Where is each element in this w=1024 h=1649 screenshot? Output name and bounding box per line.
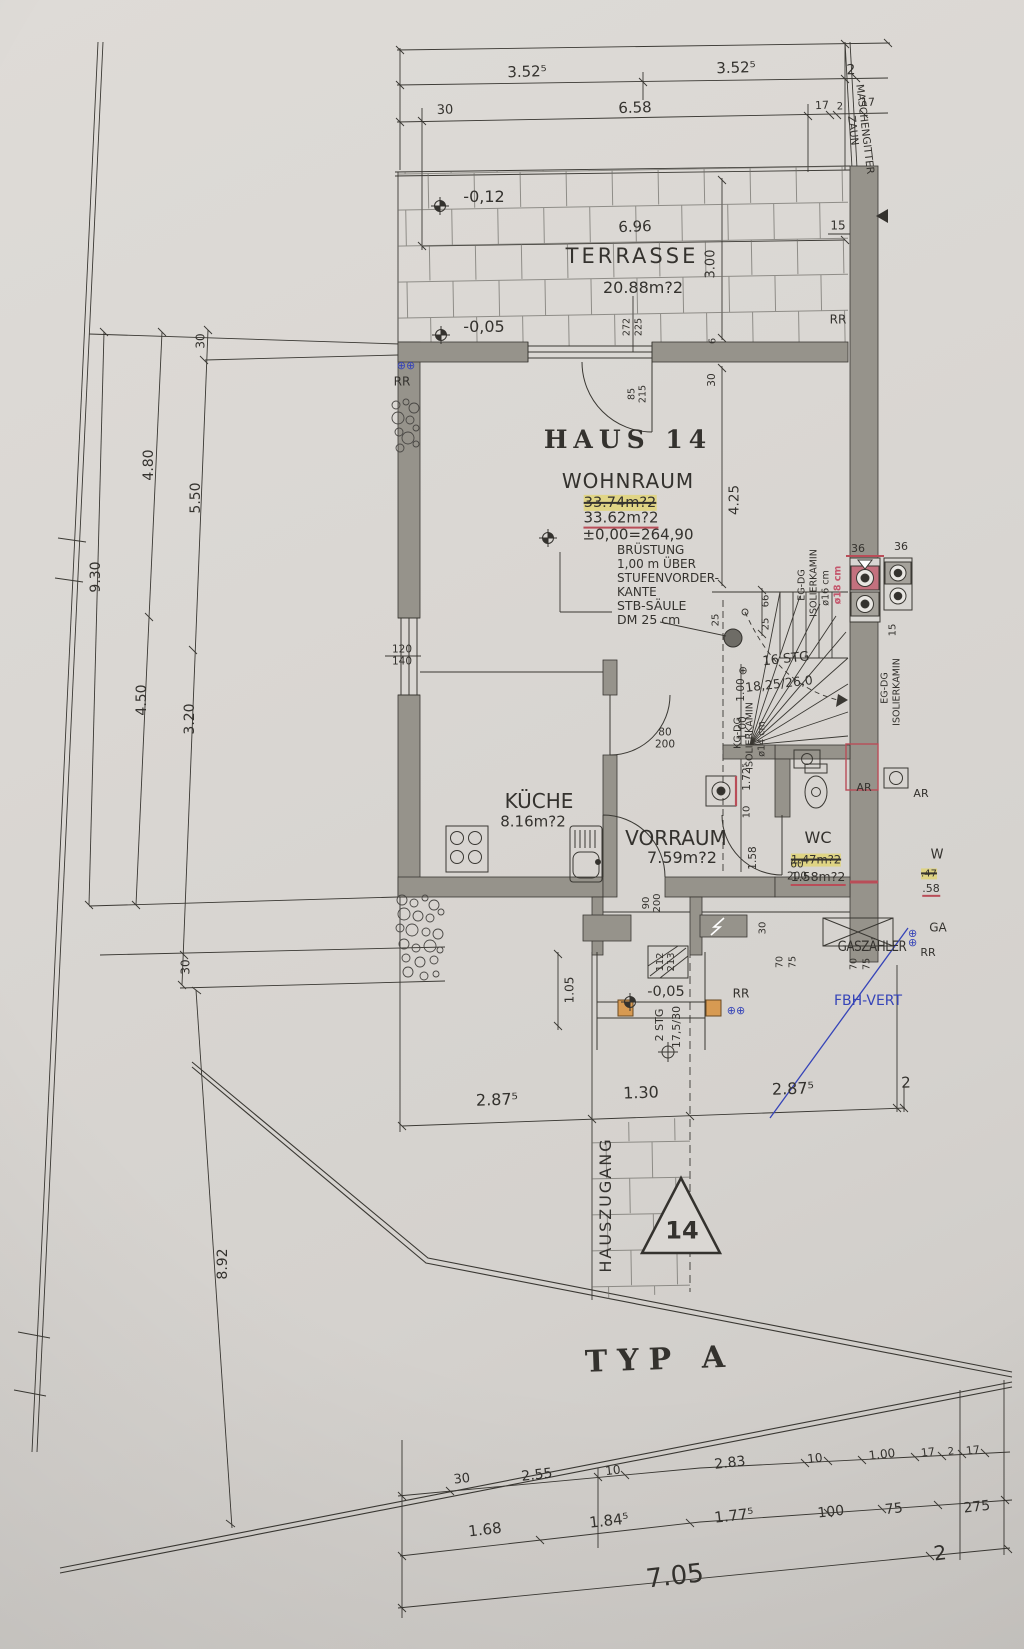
dim-label: 10 (807, 1451, 824, 1466)
dim-label: 15 (830, 219, 845, 232)
chimney-label: EG-DG (881, 672, 892, 703)
dim-label: 30 (757, 922, 768, 935)
dim-label: 10 (605, 1463, 622, 1478)
downpipe-label: RR (733, 987, 750, 1000)
chimney-label: ISOLIERKAMIN (893, 658, 904, 726)
drain-icon: ⊕⊕ (727, 1005, 745, 1017)
chimney-label: ø16 cm (822, 570, 833, 605)
dim-label: 272 (623, 318, 634, 336)
dim-label: 6.58 (618, 99, 652, 117)
dim-label: 30 (436, 103, 453, 118)
downpipe-label: RR (920, 947, 935, 959)
dim-label: 25 (710, 614, 721, 627)
dim-label: 100 (817, 1504, 845, 1523)
chimney-label: ø18 cm (834, 566, 845, 605)
dim-label: 275 (963, 1499, 991, 1518)
chimney-label: KG-DG (734, 717, 745, 749)
room-label-clipped: W (931, 849, 944, 864)
note-bruestung: BRÜSTUNG 1,00 m ÜBER STUFENVORDER- KANTE (617, 543, 719, 600)
room-label-vorraum: VORRAUM (625, 827, 727, 849)
door-size-label: 80 200 (655, 727, 675, 751)
dim-label: 75 (884, 1501, 903, 1519)
dim-label: 75 (863, 958, 874, 970)
dim-label: 2 (932, 1541, 947, 1565)
level-label: ±0,00=264,90 (582, 527, 693, 544)
dim-label: 4.50 (135, 684, 151, 715)
dim-label: 6.96 (618, 218, 652, 236)
dim-label: 3.20 (183, 703, 199, 734)
area-label: 20.88m?2 (603, 279, 683, 297)
room-label-wohnraum: WOHNRAUM (562, 470, 694, 492)
vent-label: AR (913, 788, 928, 800)
dim-label: 30 (194, 333, 207, 348)
dim-label: 1.68 (467, 1520, 502, 1540)
dim-label: 75 (789, 956, 800, 968)
dim-label: 10 (741, 806, 752, 819)
dim-label: 2 (901, 1074, 911, 1091)
dim-label: 2.87⁵ (476, 1090, 519, 1109)
survey-point-icon: ⊕ (738, 665, 747, 677)
area-label: 8.16m?2 (500, 814, 566, 831)
room-label-terrasse: TERRASSE (566, 245, 699, 269)
area-label-new: .58 (922, 883, 940, 897)
level-marker-icon (431, 197, 449, 219)
dim-label: 36 (851, 543, 865, 555)
dim-label: 30 (179, 959, 192, 974)
dim-label: 1.05 (563, 977, 576, 1004)
downpipe-label: RR (830, 313, 847, 326)
dim-label: 3.52⁵ (716, 59, 756, 77)
area-label: 7.59m?2 (647, 849, 717, 867)
gas-meter-label: GASZÄHLER (838, 939, 907, 955)
gas-meter-label-clipped: GA (929, 921, 947, 934)
dim-label: 2 (846, 63, 855, 79)
walkway-label: HAUSZUGANG (597, 1137, 615, 1272)
dim-label: 4.25 (727, 485, 742, 515)
dim-label: 25 (760, 618, 771, 631)
dim-label: 3.52⁵ (507, 63, 547, 81)
chimney-label: ISOLIERKAMIN (746, 702, 757, 770)
door-size-label: 60 200 (787, 859, 807, 883)
dim-label: 30 (707, 373, 719, 386)
dim-label: 3.00 (705, 250, 720, 279)
dim-label: 2.87⁵ (772, 1079, 815, 1098)
dim-label: 17 (965, 1444, 980, 1458)
window-size-label: 120 140 (392, 644, 412, 668)
downpipe-label: RR (394, 375, 411, 388)
door-size-label: 90 200 (641, 893, 663, 912)
stair-label: 17,5/30 (671, 1006, 683, 1048)
dim-label: 36 (894, 541, 908, 553)
dim-label: 225 (635, 318, 646, 336)
area-label-old: .47 (921, 868, 937, 879)
dim-label: 8.92 (216, 1248, 232, 1279)
dim-label: 9.30 (89, 561, 105, 592)
chimney-label: ISOLIERKAMIN (810, 549, 821, 617)
dim-label: 17 (920, 1446, 935, 1460)
house-number: 14 (665, 1218, 698, 1245)
dim-label: 5.50 (189, 482, 205, 513)
fbh-label: FBH-VERT (834, 994, 902, 1010)
vent-label: AR (856, 782, 871, 794)
type-label: TYP A (584, 1341, 735, 1380)
dim-label: 66 (760, 595, 771, 608)
chimney-label: EG-DG (798, 569, 809, 600)
dim-label: 30 (453, 1472, 471, 1488)
scanned-floor-plan-sheet: 3.52⁵ 3.52⁵ 2 30 6.58 17 2 17 MASCHENGIT… (0, 0, 1024, 1649)
dim-label: 70 (776, 956, 787, 968)
room-label-kueche: KÜCHE (505, 790, 574, 812)
level-marker-icon (621, 993, 639, 1015)
dim-label: 17 (815, 100, 829, 113)
chimney-label: ø14 cm (758, 721, 769, 756)
stair-label: 2 STG (654, 1009, 666, 1042)
dim-label: 6 (709, 338, 720, 344)
dim-label: 4.80 (142, 449, 158, 480)
house-title: HAUS 14 (544, 426, 712, 454)
drain-icon: ⊕⊕ (907, 929, 919, 947)
level-marker-icon (539, 529, 557, 551)
door-size-label: 85 215 (627, 385, 648, 403)
dim-label: 1.58 (748, 846, 760, 869)
dim-label: 70 (850, 958, 861, 970)
drain-icon: ⊕⊕ (397, 360, 415, 372)
dim-label: 2 (947, 1446, 955, 1458)
level-label: -0,05 (647, 984, 685, 1000)
dim-label: 1.30 (623, 1083, 659, 1102)
note-saeule: STB-SÄULE DM 25 cm (617, 599, 686, 628)
level-marker-icon (432, 326, 450, 348)
dim-label: 15 (887, 624, 898, 637)
window-size-label: 112 213 (655, 952, 677, 971)
level-label: -0,05 (463, 318, 504, 336)
room-label-wc: WC (805, 829, 832, 847)
level-label: -0,12 (463, 188, 504, 206)
